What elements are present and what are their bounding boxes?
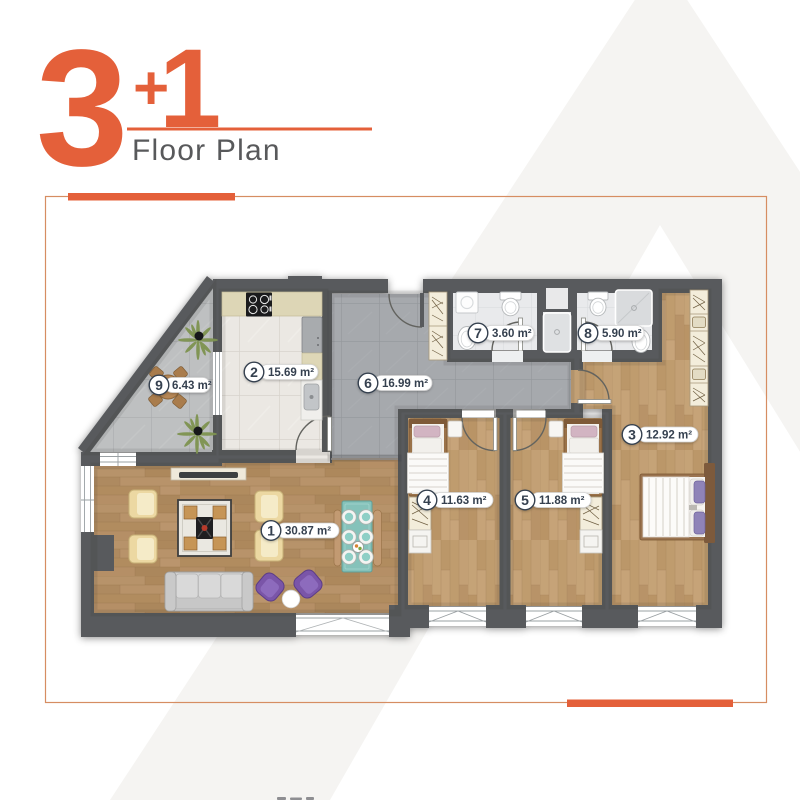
svg-text:9: 9 (155, 377, 163, 393)
svg-text:1: 1 (159, 26, 221, 151)
svg-text:1: 1 (267, 523, 275, 539)
svg-text:15.69 m²: 15.69 m² (268, 367, 314, 379)
svg-text:4: 4 (423, 492, 431, 508)
svg-text:30.87 m²: 30.87 m² (285, 526, 331, 538)
svg-text:8: 8 (584, 325, 592, 341)
svg-text:3.60 m²: 3.60 m² (492, 328, 532, 340)
svg-text:6.43 m²: 6.43 m² (172, 380, 212, 392)
svg-text:11.88 m²: 11.88 m² (539, 495, 585, 507)
svg-text:2: 2 (250, 364, 258, 380)
svg-text:6: 6 (364, 375, 372, 391)
svg-text:16.99 m²: 16.99 m² (382, 378, 428, 390)
svg-text:3: 3 (36, 16, 128, 201)
svg-text:7: 7 (474, 325, 482, 341)
svg-text:3: 3 (628, 427, 636, 443)
svg-text:Floor Plan: Floor Plan (132, 134, 281, 167)
svg-text:5: 5 (521, 492, 529, 508)
svg-text:12.92 m²: 12.92 m² (646, 430, 692, 442)
svg-text:5.90 m²: 5.90 m² (602, 328, 642, 340)
svg-text:11.63 m²: 11.63 m² (441, 495, 487, 507)
